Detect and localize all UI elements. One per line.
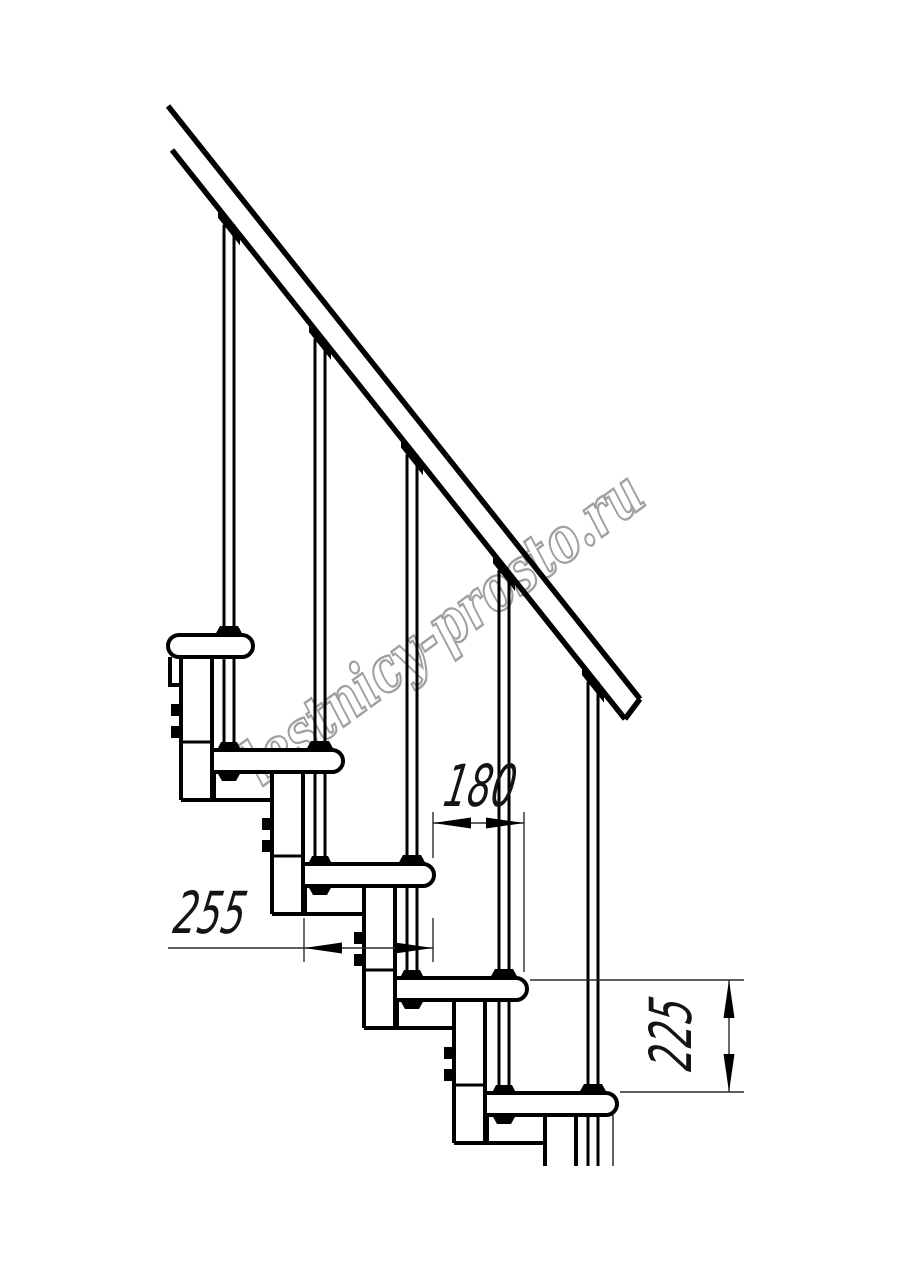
stair-module-2 (181, 323, 343, 914)
clamp-tab (262, 818, 272, 830)
through-bolt-nut (308, 886, 332, 895)
baluster-tread-mount (398, 855, 426, 864)
baluster-tread-mount (579, 1084, 607, 1093)
arrowhead-left (304, 943, 342, 954)
clamp-tab (354, 932, 364, 944)
clamp-tab (444, 1047, 454, 1059)
support-rod (492, 1000, 516, 1093)
technical-drawing-page: lestnicy-prosto.ru 180 255 225 (0, 0, 914, 1280)
staircase-side-view-drawing: lestnicy-prosto.ru 180 255 225 (0, 0, 914, 1280)
baluster (215, 209, 243, 635)
watermark-text: lestnicy-prosto.ru (227, 456, 657, 799)
through-bolt-nut (492, 1115, 516, 1124)
tread (303, 864, 434, 886)
arrowhead-right (395, 943, 433, 954)
handrail-end-cut (625, 699, 640, 719)
clamp-tab (262, 840, 272, 852)
baluster (579, 666, 607, 1093)
tread (395, 978, 527, 1000)
dimension-label-tread-depth: 255 (169, 879, 252, 947)
arrowhead-up (724, 980, 735, 1018)
clamp-tab (171, 726, 181, 738)
dimension-rise: 225 (530, 980, 744, 1092)
arrowhead-down (724, 1054, 735, 1092)
through-bolt-nut (217, 772, 241, 781)
dimension-label-rise: 225 (637, 992, 705, 1075)
dimension-label-run: 180 (439, 752, 522, 820)
support-rod (588, 1115, 598, 1166)
clamp-tab (354, 954, 364, 966)
stair-module-1 (168, 209, 253, 800)
baluster-tread-mount (490, 969, 518, 978)
baluster-tread-mount (215, 626, 243, 635)
watermark-layer: lestnicy-prosto.ru (227, 456, 657, 799)
through-bolt-nut (400, 1000, 424, 1009)
support-rod (308, 772, 332, 864)
clamp-tab (171, 704, 181, 716)
stair-module-5 (454, 666, 617, 1166)
tread (212, 750, 343, 772)
support-rod (400, 886, 424, 978)
clamp-tab (444, 1069, 454, 1081)
tread (485, 1093, 617, 1115)
tread (168, 635, 253, 657)
